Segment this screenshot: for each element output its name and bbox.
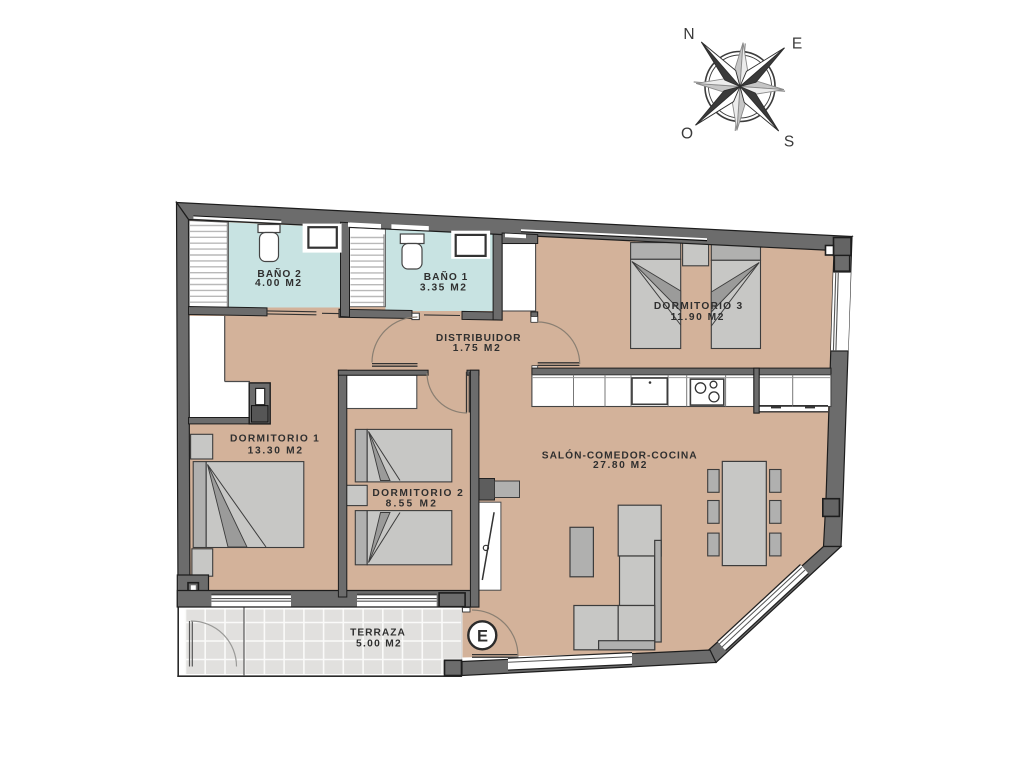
svg-text:3.35 M2: 3.35 M2 [420,282,468,293]
svg-text:DORMITORIO 1: DORMITORIO 1 [230,433,320,444]
svg-text:TERRAZA: TERRAZA [350,628,406,639]
svg-text:DORMITORIO 2: DORMITORIO 2 [372,488,464,499]
svg-text:27.80 M2: 27.80 M2 [593,460,648,471]
svg-text:13.30 M2: 13.30 M2 [248,445,304,456]
svg-text:11.90 M2: 11.90 M2 [671,312,725,323]
svg-text:N: N [683,26,694,43]
svg-text:E: E [792,36,802,53]
svg-text:5.00 M2: 5.00 M2 [356,638,402,649]
svg-text:E: E [477,627,488,645]
svg-text:4.00 M2: 4.00 M2 [255,278,303,289]
svg-text:8.55 M2: 8.55 M2 [386,498,439,509]
svg-text:S: S [784,134,794,151]
svg-text:O: O [681,126,693,143]
svg-text:BAÑO 1: BAÑO 1 [424,270,469,283]
svg-text:1.75 M2: 1.75 M2 [453,343,502,354]
svg-text:DORMITORIO 3: DORMITORIO 3 [654,301,744,312]
